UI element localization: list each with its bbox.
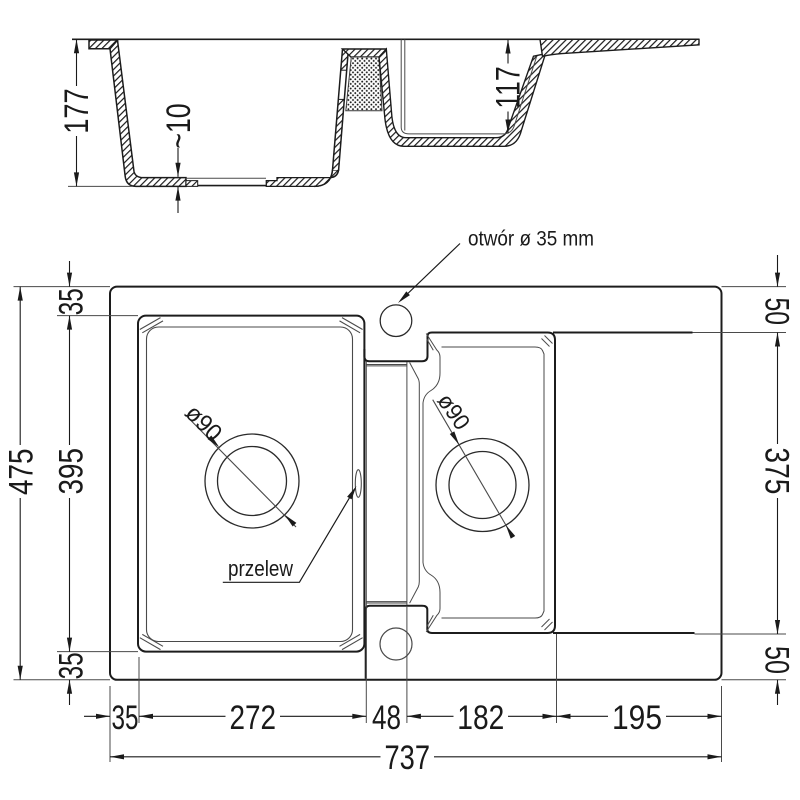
svg-text:otwór ø 35 mm: otwór ø 35 mm [468,228,594,251]
svg-text:177: 177 [58,88,96,134]
svg-text:35: 35 [52,288,90,315]
svg-text:przelew: przelew [228,556,293,581]
svg-text:ø90: ø90 [180,400,227,447]
svg-text:182: 182 [457,699,504,737]
svg-text:ø90: ø90 [432,388,475,434]
svg-text:395: 395 [52,448,90,495]
svg-text:35: 35 [112,699,139,737]
svg-text:117: 117 [490,66,528,109]
svg-text:475: 475 [3,449,41,496]
svg-text:50: 50 [757,646,795,674]
svg-text:195: 195 [612,699,662,737]
svg-text:375: 375 [757,447,795,494]
svg-text:48: 48 [372,699,401,737]
svg-text:737: 737 [385,739,431,777]
svg-text:50: 50 [757,298,795,326]
svg-text:35: 35 [52,652,90,679]
svg-text:272: 272 [230,699,277,737]
svg-text:~10: ~10 [160,103,198,149]
